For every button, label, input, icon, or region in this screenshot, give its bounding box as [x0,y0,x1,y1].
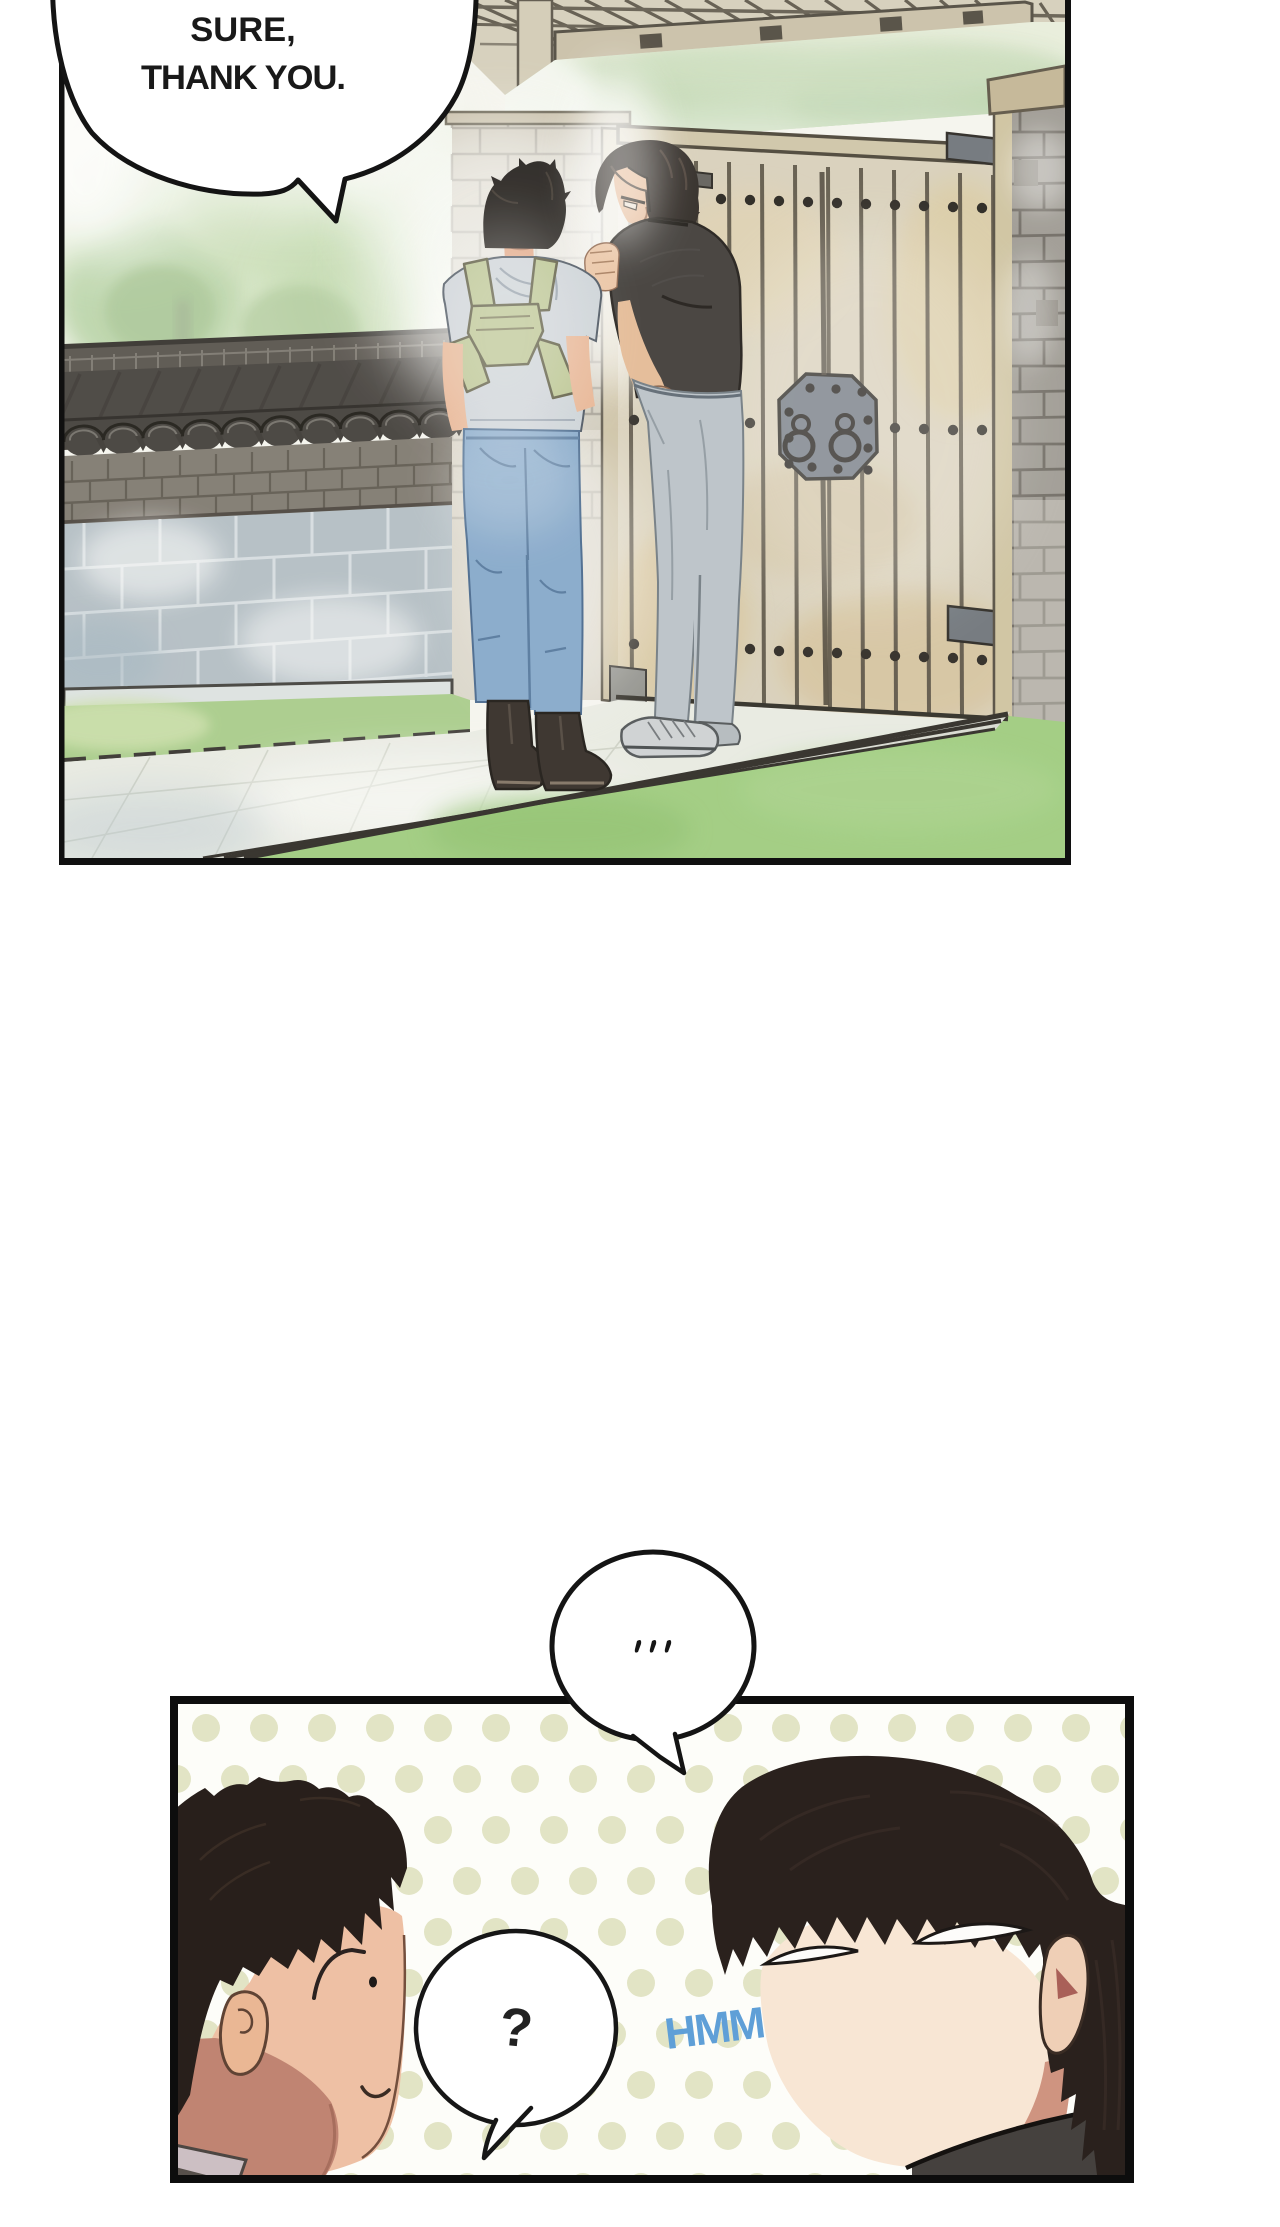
svg-text:?: ? [496,1996,535,2059]
svg-text:THANK YOU.: THANK YOU. [141,59,345,97]
svg-text:SURE,: SURE, [190,11,295,49]
